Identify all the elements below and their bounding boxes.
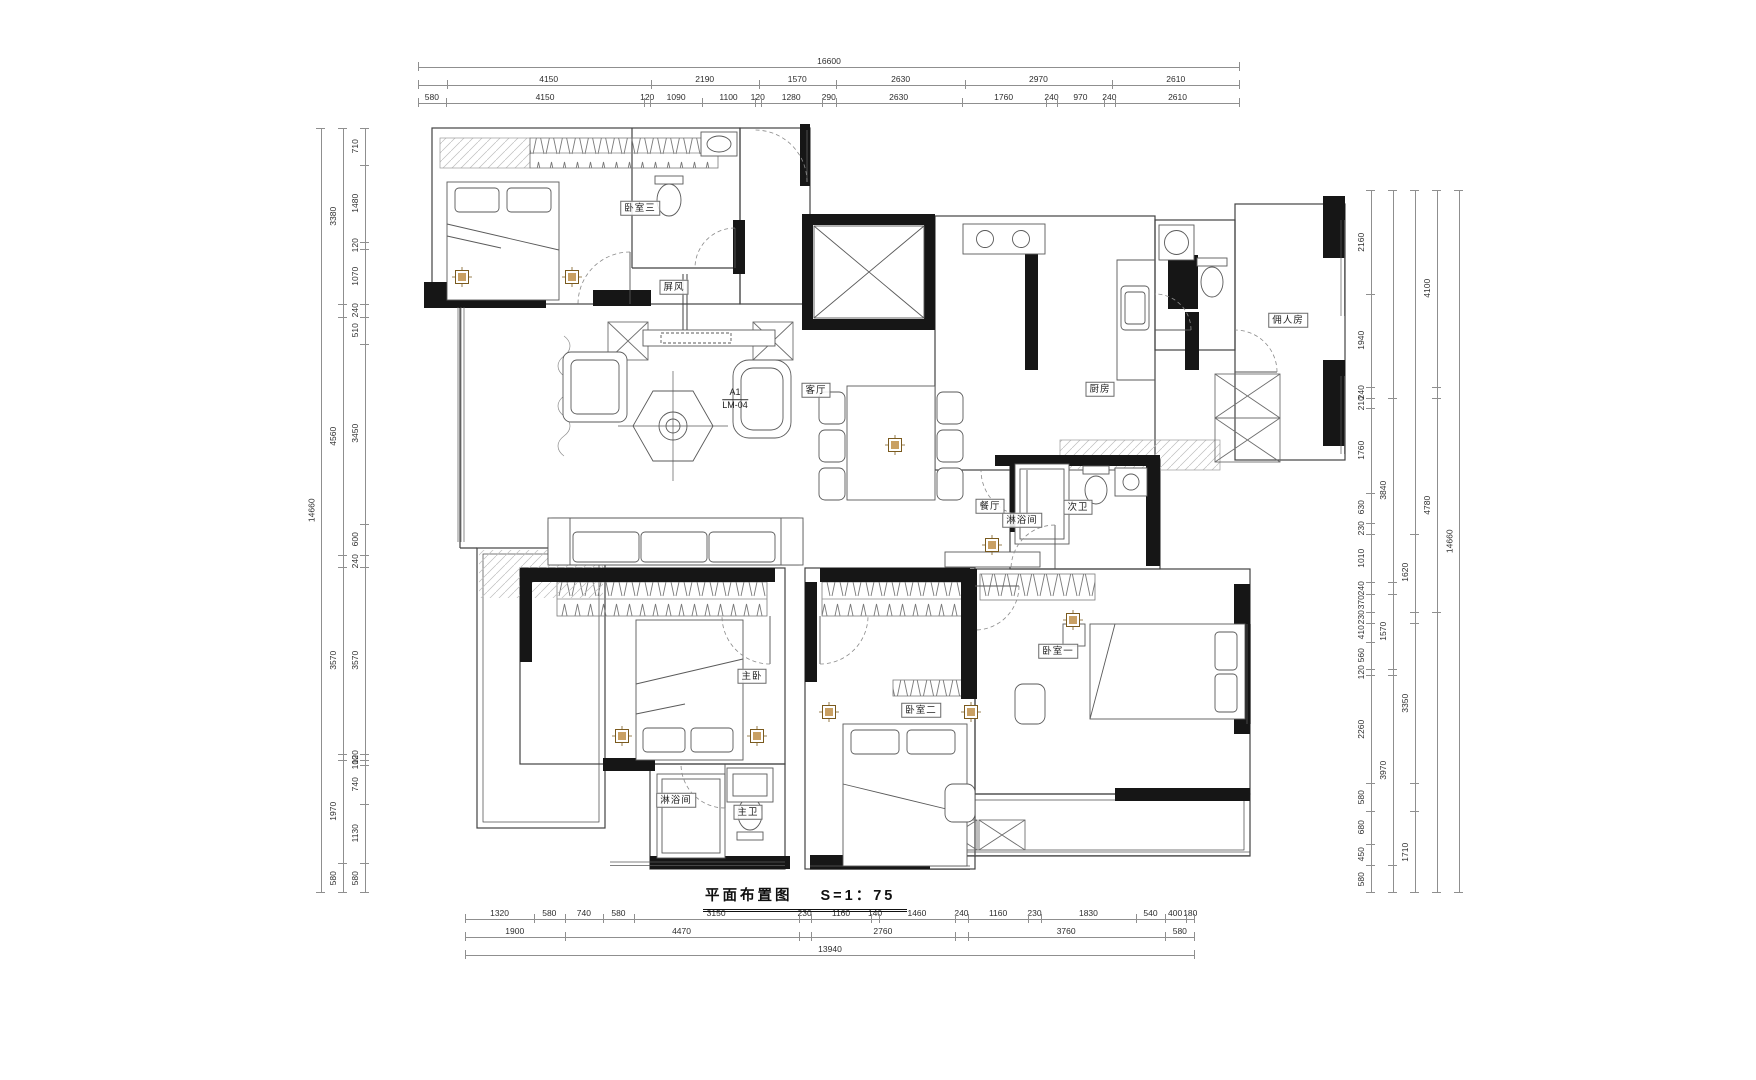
dim-segment: 2190 bbox=[651, 70, 759, 86]
dim-segment: 740 bbox=[346, 765, 366, 804]
dim-segment bbox=[1396, 612, 1416, 623]
dim-segment: 3760 bbox=[968, 922, 1165, 938]
dim-segment: 740 bbox=[565, 904, 604, 920]
dim-value: 3450 bbox=[351, 424, 360, 443]
dim-segment: 4150 bbox=[446, 88, 645, 104]
dim-segment: 3570 bbox=[346, 567, 366, 753]
dim-segment bbox=[1396, 190, 1416, 534]
dim-segment: 1100 bbox=[702, 88, 755, 104]
dim-segment: 180 bbox=[1186, 904, 1195, 920]
dim-segment: 230 bbox=[1028, 904, 1040, 920]
dim-value: 1970 bbox=[329, 802, 338, 821]
dim-segment: 1760 bbox=[1352, 408, 1372, 492]
dim-segment: 970 bbox=[1057, 88, 1103, 104]
dim-value: 1620 bbox=[1401, 563, 1410, 582]
dim-segment: 1710 bbox=[1396, 811, 1416, 893]
room-label-screen: 屏风 bbox=[659, 280, 688, 295]
dim-segment: 1620 bbox=[1396, 534, 1416, 612]
dim-segment: 2610 bbox=[1115, 88, 1240, 104]
dim-value: 2190 bbox=[695, 75, 714, 84]
dim-segment: 1940 bbox=[1352, 294, 1372, 387]
dim-value: 580 bbox=[1357, 790, 1366, 804]
dim-segment: 240 bbox=[346, 555, 366, 568]
dim-row: 1900447027603760580 bbox=[465, 922, 1195, 938]
dim-value: 580 bbox=[611, 909, 625, 918]
dim-segment: 2970 bbox=[965, 70, 1111, 86]
dim-segment: 3380 bbox=[324, 128, 344, 304]
dim-segment: 1570 bbox=[759, 70, 836, 86]
dim-segment: 2160 bbox=[1352, 190, 1372, 294]
dim-value: 580 bbox=[351, 871, 360, 885]
dim-segment: 230 bbox=[1352, 612, 1372, 623]
dim-segment: 600 bbox=[346, 524, 366, 555]
dim-value: 16600 bbox=[817, 57, 841, 66]
room-label-shower-mid: 淋浴间 bbox=[1002, 513, 1042, 528]
dim-column: 384015703970 bbox=[1374, 190, 1394, 893]
dim-segment: 2630 bbox=[836, 70, 965, 86]
dim-value: 710 bbox=[351, 139, 360, 153]
dim-value: 1760 bbox=[994, 93, 1013, 102]
dim-segment: 580 bbox=[534, 904, 564, 920]
dim-value: 1570 bbox=[1379, 622, 1388, 641]
dim-segment: 1830 bbox=[1041, 904, 1137, 920]
dim-value: 1570 bbox=[788, 75, 807, 84]
room-label-maid: 佣人房 bbox=[1268, 313, 1308, 328]
dim-value: 290 bbox=[822, 93, 836, 102]
dim-row: 16600 bbox=[418, 52, 1240, 68]
dim-segment: 2610 bbox=[1112, 70, 1240, 86]
dim-segment: 4470 bbox=[565, 922, 799, 938]
dim-value: 740 bbox=[351, 777, 360, 791]
dim-segment: 710 bbox=[346, 128, 366, 165]
dim-value: 2630 bbox=[891, 75, 910, 84]
dim-segment: 580 bbox=[1352, 865, 1372, 893]
dim-value: 4560 bbox=[329, 426, 338, 445]
dim-segment: 4560 bbox=[324, 317, 344, 555]
dim-value: 1830 bbox=[1079, 909, 1098, 918]
room-label-dining: 餐厅 bbox=[975, 499, 1004, 514]
dim-value: 3350 bbox=[1401, 693, 1410, 712]
dim-segment bbox=[324, 304, 344, 317]
dim-segment: 450 bbox=[1352, 844, 1372, 866]
dim-segment: 580 bbox=[603, 904, 633, 920]
dim-value: 240 bbox=[351, 554, 360, 568]
dim-segment: 2760 bbox=[811, 922, 956, 938]
dim-segment: 240 bbox=[346, 304, 366, 317]
room-label-shower-master: 淋浴间 bbox=[656, 793, 696, 808]
dim-segment: 1070 bbox=[346, 249, 366, 305]
dim-value: 180 bbox=[1183, 909, 1197, 918]
dim-segment bbox=[1374, 582, 1394, 594]
dim-value: 580 bbox=[329, 871, 338, 885]
dim-value: 2160 bbox=[1357, 232, 1366, 251]
dim-value: 2970 bbox=[1029, 75, 1048, 84]
dim-value: 14660 bbox=[307, 499, 316, 523]
dim-segment: 580 bbox=[1165, 922, 1195, 938]
dim-value: 580 bbox=[1357, 872, 1366, 886]
room-label-bath-second: 次卫 bbox=[1063, 500, 1092, 515]
dim-value: 4470 bbox=[672, 927, 691, 936]
dimension-chain-bottom: 1320580740580315023011601401460240116023… bbox=[465, 904, 1195, 958]
dim-segment: 1090 bbox=[650, 88, 702, 104]
dim-segment: 580 bbox=[346, 863, 366, 893]
dim-value: 3840 bbox=[1379, 481, 1388, 500]
dim-value: 580 bbox=[425, 93, 439, 102]
dim-segment: 410 bbox=[1352, 623, 1372, 643]
dim-value: 2610 bbox=[1166, 75, 1185, 84]
dim-value: 400 bbox=[1168, 909, 1182, 918]
dim-segment: 3840 bbox=[1374, 398, 1394, 582]
dim-segment: 630 bbox=[1352, 493, 1372, 523]
dim-segment: 1320 bbox=[465, 904, 534, 920]
dim-value: 560 bbox=[1357, 649, 1366, 663]
dim-segment: 240 bbox=[1104, 88, 1115, 104]
dim-segment: 510 bbox=[346, 317, 366, 344]
dim-segment bbox=[324, 555, 344, 568]
dim-segment bbox=[1374, 865, 1394, 893]
dim-segment: 1570 bbox=[1374, 594, 1394, 669]
dim-value: 740 bbox=[577, 909, 591, 918]
dim-value: 1280 bbox=[782, 93, 801, 102]
dim-value: 540 bbox=[1143, 909, 1157, 918]
dim-value: 580 bbox=[542, 909, 556, 918]
elevation-marker: A1 LM-04 bbox=[722, 387, 748, 411]
dim-value: 1760 bbox=[1357, 441, 1366, 460]
floorplan-sheet: { "title": {"text": "平面布置图", "scale": "S… bbox=[0, 0, 1756, 1080]
dim-segment bbox=[1418, 387, 1438, 399]
dim-segment: 1010 bbox=[1352, 534, 1372, 582]
dimension-chain-left: 14660 3380456035701970580 71014801201070… bbox=[302, 128, 366, 893]
dim-segment bbox=[955, 922, 968, 938]
dim-value: 630 bbox=[1357, 501, 1366, 515]
dim-segment: 1970 bbox=[324, 760, 344, 863]
dim-segment: 580 bbox=[418, 88, 446, 104]
room-label-bedroom2: 卧室二 bbox=[901, 703, 941, 718]
dim-segment: 1760 bbox=[962, 88, 1046, 104]
marker-line2: LM-04 bbox=[722, 400, 748, 411]
dim-value: 1900 bbox=[505, 927, 524, 936]
dim-value: 3380 bbox=[329, 207, 338, 226]
dim-segment: 14660 bbox=[1440, 190, 1460, 893]
dim-value: 3570 bbox=[329, 651, 338, 670]
title-text: 平面布置图 bbox=[705, 884, 793, 905]
dim-value: 2630 bbox=[889, 93, 908, 102]
room-label-bath-master: 主卫 bbox=[733, 805, 762, 820]
dim-segment: 4780 bbox=[1418, 398, 1438, 611]
dim-value: 240 bbox=[351, 304, 360, 318]
dim-segment: 240 bbox=[955, 904, 968, 920]
dim-value: 3570 bbox=[351, 651, 360, 670]
dim-column: 14660 bbox=[302, 128, 322, 893]
dim-value: 1010 bbox=[1357, 549, 1366, 568]
room-label-master: 主卧 bbox=[737, 669, 766, 684]
dim-value: 1710 bbox=[1401, 843, 1410, 862]
dim-value: 970 bbox=[1073, 93, 1087, 102]
room-label-bedroom1: 卧室一 bbox=[1038, 644, 1078, 659]
dim-value: 450 bbox=[1357, 847, 1366, 861]
room-label-living: 客厅 bbox=[801, 383, 830, 398]
dim-value: 1480 bbox=[351, 194, 360, 213]
dim-value: 1070 bbox=[351, 267, 360, 286]
dim-value: 14660 bbox=[1445, 530, 1454, 554]
dim-column: 7101480120107024051034506002403570120100… bbox=[346, 128, 366, 893]
dim-segment: 14660 bbox=[302, 128, 322, 893]
dim-segment bbox=[418, 70, 447, 86]
dim-value: 4150 bbox=[536, 93, 555, 102]
dim-segment: 210 bbox=[1352, 398, 1372, 408]
dim-column: 162033501710 bbox=[1396, 190, 1416, 893]
dim-value: 600 bbox=[351, 532, 360, 546]
dim-segment: 2260 bbox=[1352, 675, 1372, 783]
dim-segment: 4150 bbox=[447, 70, 651, 86]
dim-segment: 3450 bbox=[346, 344, 366, 524]
dim-value: 1460 bbox=[907, 909, 926, 918]
dim-value: 2260 bbox=[1357, 720, 1366, 739]
dim-value: 580 bbox=[1173, 927, 1187, 936]
dim-value: 2760 bbox=[873, 927, 892, 936]
dim-segment: 1280 bbox=[761, 88, 822, 104]
dim-segment: 680 bbox=[1352, 811, 1372, 844]
dim-value: 230 bbox=[1027, 909, 1041, 918]
dim-value: 4780 bbox=[1423, 495, 1432, 514]
dimension-chain-top: 16600 415021901570263029702610 580415012… bbox=[418, 52, 1240, 106]
dim-column: 2160194024021017606302301010240370230410… bbox=[1352, 190, 1372, 893]
dim-value: 1090 bbox=[667, 93, 686, 102]
dim-row: 13940 bbox=[465, 940, 1195, 956]
dim-segment: 370 bbox=[1352, 594, 1372, 612]
dim-segment: 3970 bbox=[1374, 675, 1394, 865]
dim-segment bbox=[799, 922, 811, 938]
dim-column: 41004780 bbox=[1418, 190, 1438, 893]
dim-segment: 2630 bbox=[836, 88, 962, 104]
dim-segment: 16600 bbox=[418, 52, 1240, 68]
dim-value: 4150 bbox=[539, 75, 558, 84]
dim-segment: 1130 bbox=[346, 804, 366, 863]
room-label-bedroom3: 卧室三 bbox=[620, 201, 660, 216]
dim-segment bbox=[1374, 190, 1394, 398]
dim-value: 3970 bbox=[1379, 761, 1388, 780]
dim-segment: 540 bbox=[1136, 904, 1164, 920]
title-scale: S=1：75 bbox=[821, 884, 896, 905]
dim-value: 3760 bbox=[1057, 927, 1076, 936]
dim-value: 1130 bbox=[351, 824, 360, 842]
dim-value: 410 bbox=[1357, 625, 1366, 639]
dim-segment bbox=[1396, 783, 1416, 811]
dim-segment: 1900 bbox=[465, 922, 565, 938]
dim-segment: 1480 bbox=[346, 165, 366, 242]
floorplan-drawing bbox=[415, 124, 1350, 884]
dim-segment: 580 bbox=[324, 863, 344, 893]
dim-value: 1940 bbox=[1357, 331, 1366, 350]
dim-value: 2610 bbox=[1168, 93, 1187, 102]
dim-value: 1100 bbox=[719, 93, 737, 102]
dim-segment: 3570 bbox=[324, 567, 344, 753]
dim-segment: 290 bbox=[822, 88, 836, 104]
dim-column: 14660 bbox=[1440, 190, 1460, 893]
dim-row: 5804150120109011001201280290263017602409… bbox=[418, 88, 1240, 104]
dim-segment: 230 bbox=[1352, 523, 1372, 534]
marker-line1: A1 bbox=[722, 387, 748, 400]
furniture bbox=[447, 132, 1245, 866]
dim-value: 370 bbox=[1357, 596, 1366, 610]
room-label-kitchen: 厨房 bbox=[1085, 382, 1114, 397]
dim-value: 1160 bbox=[989, 909, 1007, 918]
dim-segment: 3350 bbox=[1396, 623, 1416, 784]
dimension-chain-right: 2160194024021017606302301010240370230410… bbox=[1352, 190, 1460, 893]
dim-row: 415021901570263029702610 bbox=[418, 70, 1240, 86]
dim-segment bbox=[1418, 612, 1438, 893]
dim-segment: 4100 bbox=[1418, 190, 1438, 387]
dim-value: 4100 bbox=[1423, 279, 1432, 298]
dim-segment: 13940 bbox=[465, 940, 1195, 956]
dim-value: 13940 bbox=[818, 945, 842, 954]
dim-segment: 580 bbox=[1352, 783, 1372, 811]
dim-segment: 240 bbox=[1046, 88, 1057, 104]
drawing-title: 平面布置图 S=1：75 bbox=[703, 884, 907, 912]
dim-value: 240 bbox=[954, 909, 968, 918]
dim-value: 510 bbox=[351, 323, 360, 337]
dim-value: 680 bbox=[1357, 820, 1366, 834]
dim-segment: 1160 bbox=[968, 904, 1029, 920]
dim-column: 3380456035701970580 bbox=[324, 128, 344, 893]
dim-value: 1320 bbox=[490, 909, 509, 918]
dim-segment: 240 bbox=[1352, 582, 1372, 594]
